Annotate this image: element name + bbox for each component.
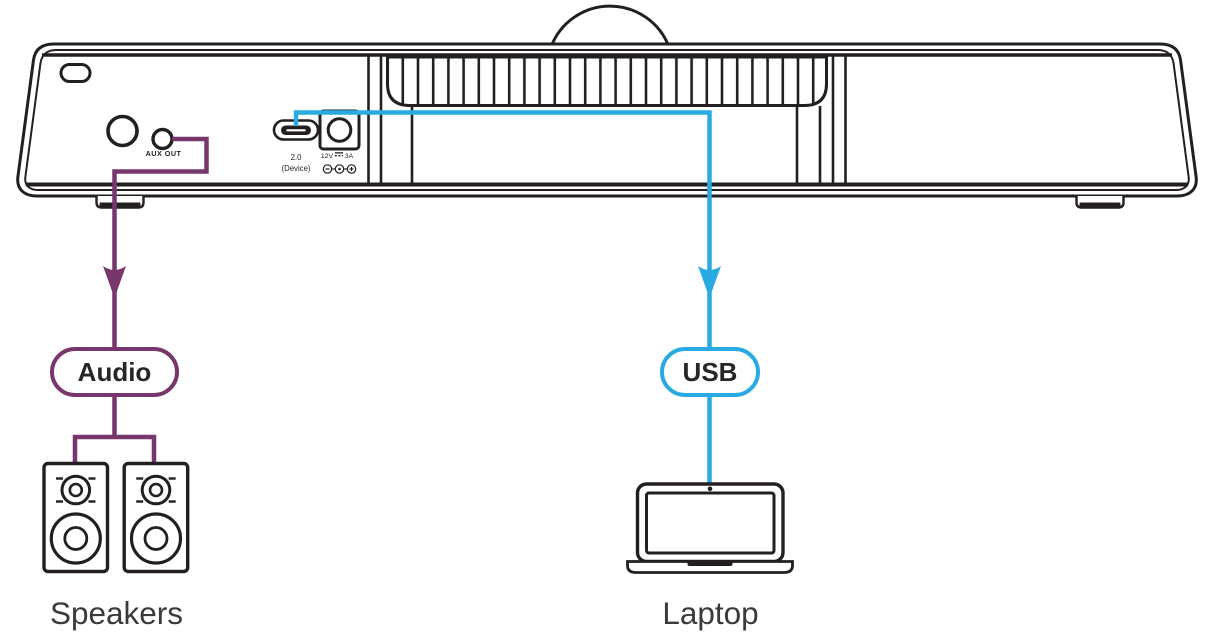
speaker-grille: [388, 57, 827, 106]
speakers-caption: Speakers: [50, 595, 183, 631]
laptop-webcam-icon: [708, 487, 713, 492]
laptop-screen: [647, 493, 775, 553]
audio-arrow-icon: [103, 266, 126, 298]
laptop-notch: [688, 562, 733, 567]
laptop-caption: Laptop: [662, 595, 758, 631]
usbc-label-line1: 2.0: [291, 153, 303, 162]
camera-dome: [551, 6, 669, 47]
audio-pill-label: Audio: [78, 357, 152, 387]
power-jack: [320, 111, 359, 149]
aux-out-label: AUX OUT: [146, 149, 182, 158]
diagram-canvas: AUX OUT 2.0 (Device) 12V 3A: [0, 0, 1214, 641]
left-foot: [97, 196, 144, 208]
oval-slot: [61, 65, 90, 82]
power-voltage-label: 12V: [321, 153, 334, 160]
audio-cable-upper: [115, 139, 207, 347]
large-round-port: [108, 117, 137, 146]
video-bar-device: AUX OUT 2.0 (Device) 12V 3A: [18, 44, 1197, 208]
laptop-drawing: [628, 484, 793, 573]
audio-cable-lower: [75, 395, 154, 463]
right-speaker: [124, 464, 188, 572]
usbc-label-line2: (Device): [281, 164, 310, 173]
speakers-drawing: [44, 464, 188, 572]
right-foot: [1077, 196, 1124, 208]
power-current-label: 3A: [345, 153, 354, 160]
usb-pill-label: USB: [683, 357, 738, 387]
usb-arrow-icon: [698, 266, 721, 298]
left-speaker: [44, 464, 108, 572]
connection-diagram: AUX OUT 2.0 (Device) 12V 3A: [0, 0, 1214, 641]
aux-out-port: [153, 130, 172, 149]
